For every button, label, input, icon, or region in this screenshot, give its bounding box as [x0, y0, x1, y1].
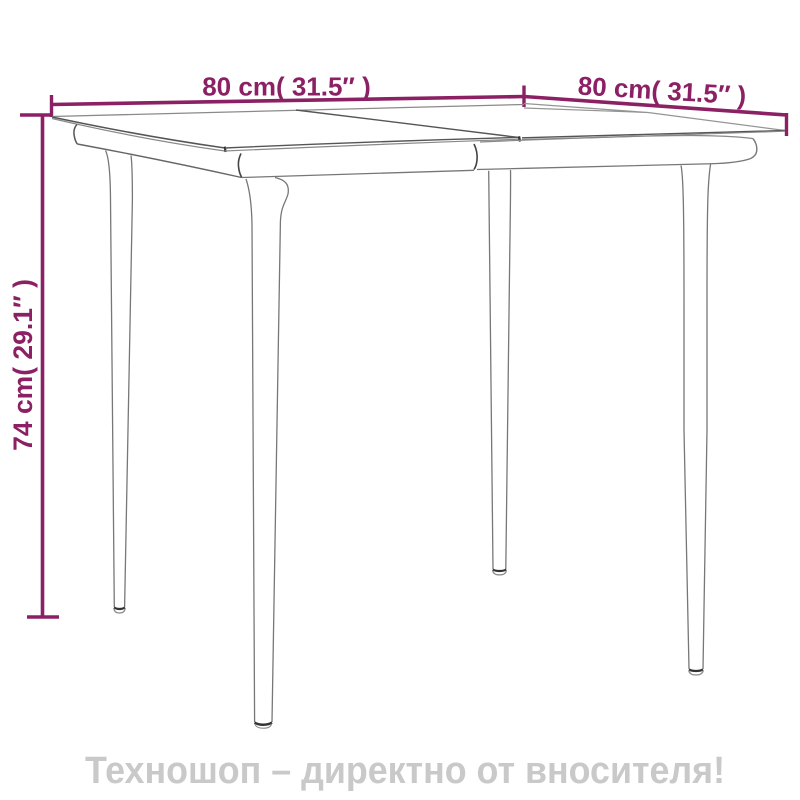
svg-text:Техношоп – директно от вносите: Техношоп – директно от вносителя! [85, 750, 725, 792]
svg-text:74 cm( 29.1″ ): 74 cm( 29.1″ ) [8, 279, 38, 451]
svg-text:80 cm( 31.5″ ): 80 cm( 31.5″ ) [202, 72, 371, 102]
